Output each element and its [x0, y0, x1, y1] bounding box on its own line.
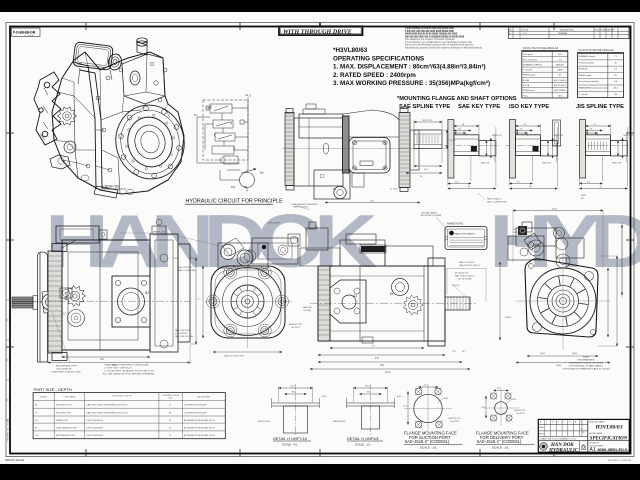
svg-text:HYD: HYD — [489, 200, 640, 283]
svg-text:*MOUNTING FLANGE AND SHAFT OPT: *MOUNTING FLANGE AND SHAFT OPTIONS — [397, 96, 517, 102]
svg-text:SAE J744-32x4(32-4): SAE J744-32x4(32-4) — [455, 275, 475, 278]
svg-text:COVERED WITH PLATE: COVERED WITH PLATE — [184, 411, 207, 414]
svg-text:W.B. PRESs: W.B. PRESs — [554, 90, 566, 92]
svg-text:HYDRAULIC: HYDRAULIC — [548, 448, 579, 453]
svg-text:SAE C-C(SHORT KB): SAE C-C(SHORT KB) — [487, 201, 507, 204]
svg-text:UNF 7/16x20Hx16: UNF 7/16x20Hx16 — [87, 420, 104, 422]
svg-text:FORM press: FORM press — [523, 89, 535, 92]
svg-text:B1: B1 — [244, 185, 248, 189]
svg-text:and is not to be disclosed to: and is not to be disclosed to anyone els… — [405, 44, 473, 47]
svg-text:SAE C 2 HOLE: SAE C 2 HOLE — [459, 261, 474, 264]
svg-text:20°: 20° — [614, 75, 617, 77]
svg-text:(162): (162) — [540, 353, 545, 355]
svg-text:291: 291 — [380, 364, 385, 367]
svg-text:H3VL80/63: H3VL80/63 — [594, 425, 622, 431]
svg-text:PITCH Dia (mm): PITCH Dia (mm) — [579, 62, 595, 64]
svg-text:SCALE : 1/1: SCALE : 1/1 — [492, 445, 509, 449]
svg-text:MEASURING Dp Dia (over pin): MEASURING Dp Dia (over pin) — [579, 87, 608, 90]
svg-text:M. DIA: M. DIA — [523, 84, 530, 87]
svg-text:2xM12X1.75P: 2xM12X1.75P — [448, 418, 461, 420]
svg-text:(347): (347) — [385, 371, 391, 374]
svg-text:ATTACHED WITH A STEEL PLUG: ATTACHED WITH A STEEL PLUG — [184, 426, 215, 429]
svg-text:Φ of spline: Φ of spline — [523, 53, 534, 56]
svg-text:SAE J518C 35MPa PRESSURE (CODE: SAE J518C 35MPa PRESSURE (CODE 61) 2" — [87, 411, 129, 414]
svg-text:Φ31.75: Φ31.75 — [449, 139, 455, 142]
svg-text:■ DWG No: ■ DWG No — [590, 442, 601, 445]
svg-text:ANSI B7: ANSI B7 — [556, 63, 565, 66]
svg-text:B. DIA: B. DIA — [523, 79, 530, 82]
svg-text:Dia ref (over cylinder): Dia ref (over cylinder) — [579, 80, 599, 83]
svg-text:NAME PLATE: NAME PLATE — [447, 222, 464, 226]
svg-text:UNF7/16-20N-PL: UNF7/16-20N-PL — [293, 207, 309, 209]
svg-text:*H3VL80/63: *H3VL80/63 — [333, 47, 368, 54]
svg-text:This drawing is the property o: This drawing is the property of Handok H… — [405, 38, 455, 41]
svg-text:ADJUSTING SCREW: ADJUSTING SCREW — [421, 214, 441, 217]
svg-text:14T DP12.7(B): 14T DP12.7(B) — [458, 279, 472, 281]
svg-text:LOAD SENSING PORT: LOAD SENSING PORT — [56, 426, 78, 429]
svg-text:DRAIN PORT: DRAIN PORT — [56, 419, 69, 422]
svg-text:2xM12: 2xM12 — [583, 357, 590, 359]
svg-text:(164): (164) — [572, 353, 577, 355]
svg-text:F R A M E · A 1 · H O R: F R A M E · A 1 · H O R — [7, 419, 10, 442]
svg-text:605.2-1 605.4: 605.2-1 605.4 — [554, 80, 568, 82]
svg-text:J: J — [546, 421, 547, 423]
svg-text:SCALE : 1/1: SCALE : 1/1 — [420, 445, 437, 449]
svg-text:SAE,J744/32x1: SAE,J744/32x1 — [178, 266, 193, 269]
svg-text:1. PORT SIZE : UNF7/16-20: 1. PORT SIZE : UNF7/16-20 — [104, 368, 132, 370]
svg-text:PL: PL — [194, 113, 198, 117]
svg-text:0 000 000 -000 000-000 0000 00: 0 000 000 -000 000-000 0000 0000 00000 0… — [405, 31, 455, 33]
svg-text:AIR BLEEDER PORT: AIR BLEEDER PORT — [56, 434, 76, 437]
svg-text:PER1GY ■ HOE: PER1GY ■ HOE — [5, 458, 24, 462]
svg-text:1. MAX. DISPLACEMENT : 80cm³/6: 1. MAX. DISPLACEMENT : 80cm³/63(4.88in³/… — [333, 64, 486, 71]
svg-text:P. of teeth: P. of teeth — [579, 93, 589, 96]
svg-text:UNF7/16-20H: UNF7/16-20H — [258, 421, 271, 423]
svg-text:NUMBER of teeth: NUMBER of teeth — [579, 55, 596, 58]
svg-text:Tair: Tair — [260, 171, 264, 175]
svg-text:PRESS angle: PRESS angle — [523, 75, 537, 77]
svg-text:SAE KEY TYPE: SAE KEY TYPE — [458, 104, 500, 110]
svg-text:APPD: APPD — [539, 433, 545, 436]
svg-text:M8X1.25P: M8X1.25P — [481, 163, 491, 165]
svg-text:▲ MARK: DIM TOL ±0.5 GENERA: ▲ MARK: DIM TOL ±0.5 GENERAL TOL ±0.8 — [539, 438, 575, 441]
svg-text:(Nm): (Nm) — [169, 397, 173, 399]
svg-text:NUMBER of TEETH: NUMBER of TEETH — [523, 64, 542, 66]
svg-text:2xM12: 2xM12 — [505, 317, 512, 319]
svg-text:WITH THROUGH DRIVE: WITH THROUGH DRIVE — [283, 29, 352, 35]
svg-text:14T 16/32DP: 14T 16/32DP — [175, 333, 188, 335]
svg-text:D A T E DWN CHK APP: D A T E DWN CHK APP — [595, 28, 616, 31]
svg-text:INVOLUTE SPLINE ΔΦΕΘ-ΔΣ: INVOLUTE SPLINE ΔΦΕΘ-ΔΣ — [579, 48, 615, 52]
svg-text:+Φ1.5Φ: +Φ1.5Φ — [452, 284, 460, 287]
svg-text:OR FOR M16 OF STRENGTH CLASS 1: OR FOR M16 OF STRENGTH CLASS 10.9 OF JIS — [562, 368, 610, 371]
svg-text:MAIN FL,TW: MAIN FL,TW — [153, 231, 165, 234]
svg-text:Tap DP17: Tap DP17 — [291, 327, 301, 329]
svg-text:14Φ: 14Φ — [558, 94, 562, 97]
svg-text:Dr1: Dr1 — [62, 313, 67, 316]
svg-text:0 000 0000000-00 00000-0000 00: 0 000 0000000-00 00000-0000 000 00000 00… — [405, 28, 455, 30]
svg-text:AIR BLEEDER PORT: AIR BLEEDER PORT — [56, 365, 78, 368]
svg-text:DETAIL H UNF7/16: DETAIL H UNF7/16 — [273, 436, 307, 441]
svg-text:6xM12X1.75P: 6xM12X1.75P — [289, 324, 303, 326]
svg-text:ATTACHED WITH A STEEL PLUG: ATTACHED WITH A STEEL PLUG — [184, 434, 215, 437]
svg-text:UNF1: UNF1 — [581, 195, 587, 197]
svg-text:1 0 1: 1 0 1 — [523, 33, 527, 35]
svg-text:PORT SIZE - DEPTH: PORT SIZE - DEPTH — [112, 395, 132, 397]
svg-text:JIS SPLINE TYPE: JIS SPLINE TYPE — [576, 104, 624, 110]
svg-text:ISO: ISO — [513, 229, 517, 231]
svg-text:A 297X420 - L 297X210: A 297X420 - L 297X210 — [608, 459, 632, 462]
svg-text:DESCRIPTION: DESCRIPTION — [560, 29, 574, 31]
svg-text:SAE J744-32-4(32-4): SAE J744-32-4(32-4) — [459, 264, 480, 267]
svg-text:M12X1.75P: M12X1.75P — [624, 135, 635, 137]
svg-text:2xM10X1.5P: 2xM10X1.5P — [514, 410, 526, 412]
svg-text:HAN DOK: HAN DOK — [550, 443, 574, 448]
svg-text:TIGHTENING TORQUE 216~220Nm: TIGHTENING TORQUE 216~220Nm — [569, 363, 603, 365]
svg-text:Tap DP17: Tap DP17 — [516, 413, 526, 415]
svg-text:HYDRAULIC CIRCUIT FOR PRINCIPL: HYDRAULIC CIRCUIT FOR PRINCIPLE — [186, 199, 284, 205]
svg-text:VIEW=30: VIEW=30 — [102, 184, 120, 189]
svg-text:■ MODEL NAME: ■ MODEL NAME — [590, 421, 606, 424]
svg-text:SAE,J744-101-2(B): SAE,J744-101-2(B) — [175, 335, 193, 338]
svg-text:RECOMMENDED: RECOMMENDED — [578, 360, 595, 362]
svg-text:DELIVERY PORT: DELIVERY PORT — [56, 405, 73, 407]
svg-text:Press: Press — [523, 94, 528, 97]
svg-text:SAE SPLINE TYPE: SAE SPLINE TYPE — [399, 104, 450, 110]
svg-text:M12X1.75P: M12X1.75P — [554, 135, 565, 137]
svg-text:(211): (211) — [552, 208, 557, 210]
svg-text:W12X1.75P: W12X1.75P — [422, 120, 433, 122]
svg-text:TIGHTENING TORQUE: TIGHTENING TORQUE — [162, 395, 179, 397]
svg-text:ISO KEY TYPE: ISO KEY TYPE — [509, 104, 549, 110]
svg-text:217: 217 — [375, 357, 380, 360]
svg-text:it is furnished to you confide: it is furnished to you confidential for … — [405, 41, 473, 44]
svg-text:217: 217 — [100, 358, 105, 361]
svg-text:A1: A1 — [590, 447, 596, 453]
svg-text:MODULE: MODULE — [579, 69, 589, 71]
svg-text:2. ON DELIVERY : ATTACHED: 2. ON DELIVERY : ATTACHED WITH STEEL PLU… — [104, 370, 155, 373]
svg-text:000 000-000 0000 000 0 0000000: 000 000-000 0000 000 0 00000000-00000 00… — [405, 36, 465, 38]
svg-text:7/16-20UNF-2B: 7/16-20UNF-2B — [56, 369, 72, 371]
svg-text:FOR 5/8X11UNC OF SAE GRADE 5: FOR 5/8X11UNC OF SAE GRADE 5 — [569, 365, 604, 368]
svg-text:D.F.C/N: D.F.C/N — [521, 29, 529, 31]
svg-text:Φ: Φ — [198, 298, 200, 301]
svg-text:OPERATING SPECIFICATIONS: OPERATING SPECIFICATIONS — [333, 55, 424, 62]
svg-text:UNF 7/16x20Hx20: UNF 7/16x20Hx20 — [87, 427, 104, 429]
svg-text:PORT NAME: PORT NAME — [64, 396, 76, 399]
svg-text:M8X1.25P: M8X1.25P — [613, 163, 623, 165]
svg-text:SAE C-C(94B1,KB): SAE C-C(94B1,KB) — [178, 269, 196, 272]
svg-text:PRESS angle: PRESS angle — [579, 75, 593, 77]
svg-text:M8X1.25P: M8X1.25P — [543, 163, 553, 165]
svg-text:SAE-J518-2" (CODE61): SAE-J518-2" (CODE61) — [405, 439, 450, 444]
svg-text:SAE J518C 35MPa PRESSURE (CODE: SAE J518C 35MPa PRESSURE (CODE 61) 1" — [87, 404, 129, 407]
svg-text:(184): (184) — [556, 365, 561, 367]
svg-text:ON DELIVERY: ON DELIVERY — [197, 397, 211, 399]
svg-text:00000-0000 000 00-00 00 00000: 00000-0000 000 00-00 00 00000 0000(0) 00… — [405, 34, 458, 36]
svg-text:14/28: 14/28 — [557, 70, 563, 72]
svg-text:M12X1.75P: M12X1.75P — [492, 135, 503, 137]
svg-text:B1: B1 — [145, 291, 149, 295]
svg-text:2. RATED SPEED : 2400rpm: 2. RATED SPEED : 2400rpm — [333, 72, 416, 79]
svg-text:SCALE : 4/1: SCALE : 4/1 — [282, 442, 298, 446]
svg-text:PORT SIZE - DEPTH: PORT SIZE - DEPTH — [34, 387, 72, 392]
svg-text:6xM12X1.75P DP20: 6xM12X1.75P DP20 — [224, 356, 245, 358]
svg-text:Pitch.Φ (Press): Pitch.Φ (Press) — [523, 58, 537, 61]
svg-text:601.21-601.2: 601.21-601.2 — [554, 85, 567, 87]
svg-text:ATTACHED WITH A STEEL PLUG: ATTACHED WITH A STEEL PLUG — [184, 419, 215, 422]
svg-text:30°: 30° — [558, 75, 561, 77]
svg-text:HANDOK HYDRAULIC: HANDOK HYDRAULIC — [455, 233, 476, 236]
svg-text:SPECIFICATION: SPECIFICATION — [590, 436, 628, 441]
svg-text:8080-4EB1-ED-0-A: 8080-4EB1-ED-0-A — [598, 447, 632, 452]
svg-text:*FILL THE CASING WITH OIL B: *FILL THE CASING WITH OIL BEFORE OPERATI… — [102, 373, 155, 376]
svg-text:Dr1: Dr1 — [231, 185, 236, 189]
svg-text:12.7(2.1): 12.7(2.1) — [390, 189, 398, 191]
svg-text:manufacturing purpose without: manufacturing purpose without the expres… — [405, 46, 483, 49]
svg-text:SUCTION PORT: SUCTION PORT — [56, 412, 72, 414]
svg-text:COVERED WITH PLATE: COVERED WITH PLATE — [184, 404, 207, 407]
svg-text:DETAIL H UNF3/4: DETAIL H UNF3/4 — [347, 436, 379, 441]
svg-text:SAE,J744: SAE,J744 — [303, 306, 313, 309]
svg-text:3. MAX WORKING PRESSURE : 35(3: 3. MAX WORKING PRESSURE : 35(356)MPa(kgf… — [333, 80, 490, 87]
svg-text:SAE (J744/32=1: SAE (J744/32=1 — [487, 198, 503, 201]
svg-text:A1: A1 — [353, 294, 357, 298]
svg-text:— -- --- ● ●: — -- --- ● ● — [24, 35, 33, 37]
svg-text:Tair: Tair — [35, 435, 39, 437]
svg-text:UNF1/2x20H: UNF1/2x20H — [268, 223, 280, 225]
svg-text:UNF3/4x16UN: UNF3/4x16UN — [333, 421, 347, 423]
svg-text:P. of teeth: P. of teeth — [523, 69, 533, 72]
svg-text:INVOLUTE SPLINE ΔΦΕΘ-ΔΣ: INVOLUTE SPLINE ΔΦΕΘ-ΔΣ — [523, 46, 559, 50]
svg-text:A1: A1 — [245, 93, 249, 97]
svg-text:*DRAIN PORT/TIGHTENING TORQU: *DRAIN PORT/TIGHTENING TORQUE 50Nm — [104, 364, 149, 367]
svg-text:3/8-16UNC-2B: 3/8-16UNC-2B — [455, 273, 469, 275]
svg-text:101-2(B): 101-2(B) — [303, 310, 311, 312]
svg-text:Tap DP16: Tap DP16 — [450, 421, 460, 423]
svg-text:UNF 7/16x20Hx20: UNF 7/16x20Hx20 — [87, 435, 104, 437]
svg-text:1.4Φ35: 1.4Φ35 — [172, 257, 179, 260]
svg-text:■ DWG NAME: ■ DWG NAME — [590, 432, 604, 435]
svg-text:SAE-J518-1" (CODE61): SAE-J518-1" (CODE61) — [477, 439, 522, 444]
svg-text:ORIGINAL: ORIGINAL — [558, 32, 568, 35]
svg-text:TIGHTENING TORQUE 12Nm: TIGHTENING TORQUE 12Nm — [51, 372, 81, 374]
svg-text:PL: PL — [333, 187, 337, 191]
svg-text:SAE,J744-25x4: SAE,J744-25x4 — [175, 329, 190, 332]
svg-text:SCALE : 1/1: SCALE : 1/1 — [355, 442, 371, 446]
svg-text:DWN: DWN — [539, 427, 544, 429]
svg-text:SYMBOL: SYMBOL — [40, 397, 48, 399]
